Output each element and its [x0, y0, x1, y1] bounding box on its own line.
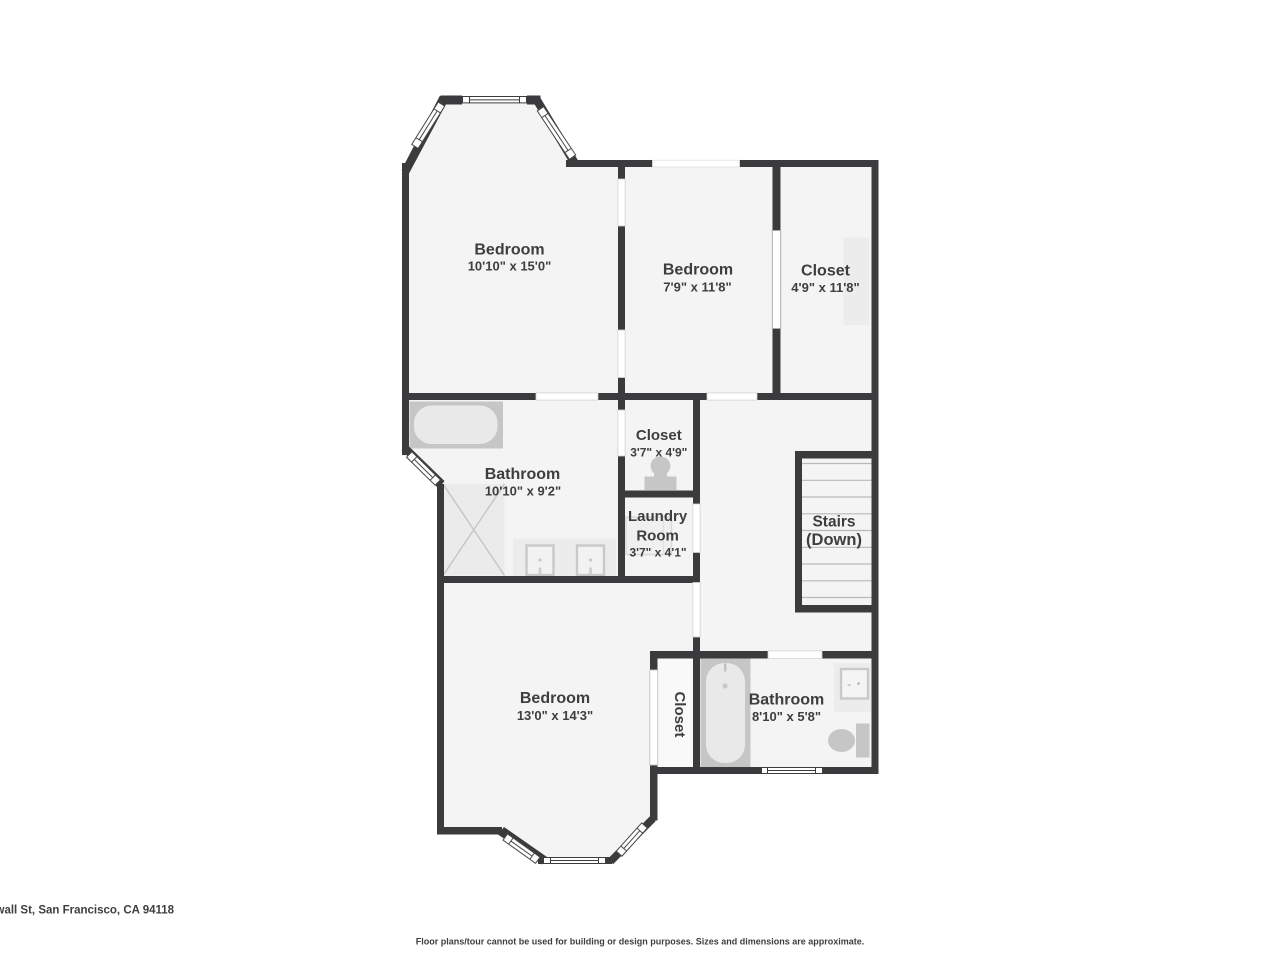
svg-text:7'9" x 11'8": 7'9" x 11'8" [663, 280, 731, 295]
svg-text:Closet: Closet [671, 691, 688, 737]
svg-text:10'10" x 9'2": 10'10" x 9'2" [485, 484, 561, 499]
svg-text:Stairs: Stairs [812, 513, 855, 530]
svg-text:wall St, San Francisco, CA 941: wall St, San Francisco, CA 94118 [0, 905, 175, 917]
svg-text:Laundry: Laundry [628, 508, 688, 525]
svg-text:4'9" x 11'8": 4'9" x 11'8" [791, 280, 859, 295]
svg-text:Closet: Closet [801, 262, 851, 279]
svg-text:13'0" x 14'3": 13'0" x 14'3" [517, 708, 593, 723]
svg-text:3'7" x 4'9": 3'7" x 4'9" [630, 445, 687, 459]
svg-text:Closet: Closet [636, 427, 682, 444]
svg-text:Bedroom: Bedroom [520, 690, 590, 707]
svg-text:Bathroom: Bathroom [749, 691, 825, 708]
svg-text:Floor plans/tour cannot be use: Floor plans/tour cannot be used for buil… [416, 936, 865, 946]
svg-text:10'10" x 15'0": 10'10" x 15'0" [468, 259, 552, 274]
svg-text:(Down): (Down) [806, 531, 862, 549]
svg-text:Bathroom: Bathroom [485, 466, 561, 483]
svg-text:Bedroom: Bedroom [474, 241, 544, 258]
svg-text:Room: Room [636, 527, 679, 544]
svg-text:Bedroom: Bedroom [663, 261, 733, 278]
svg-text:8'10" x 5'8": 8'10" x 5'8" [752, 709, 821, 724]
svg-text:3'7" x 4'1": 3'7" x 4'1" [629, 545, 686, 559]
